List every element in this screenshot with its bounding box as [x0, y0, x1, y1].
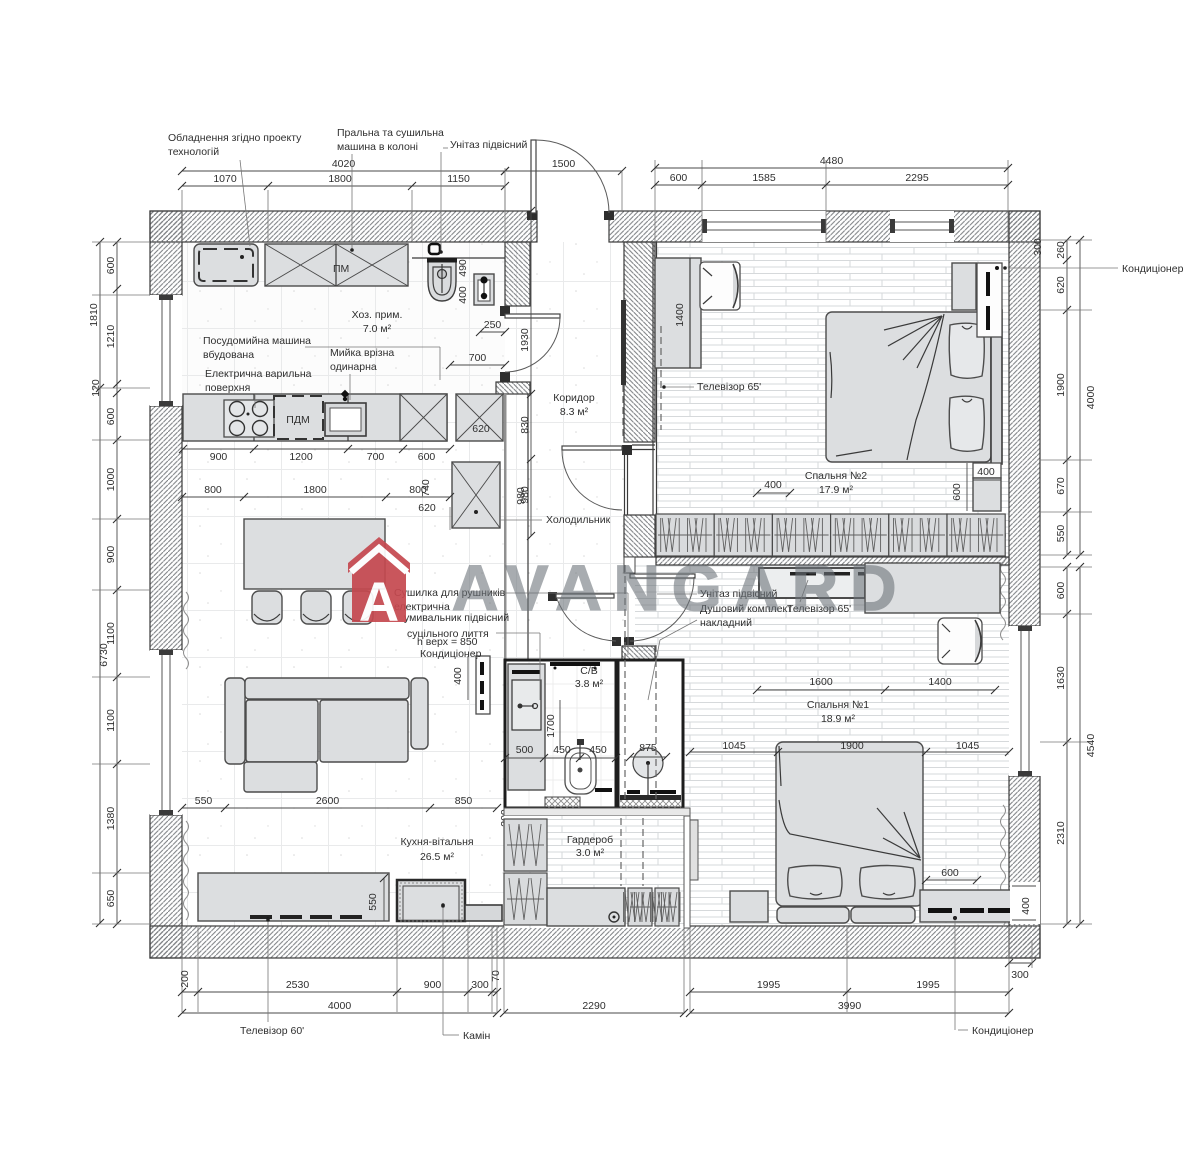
svg-text:1070: 1070 [213, 173, 237, 185]
svg-text:300: 300 [1032, 238, 1044, 256]
svg-text:550: 550 [367, 893, 379, 911]
svg-text:875: 875 [639, 742, 657, 754]
svg-text:300: 300 [1011, 969, 1029, 981]
svg-text:400: 400 [452, 667, 464, 685]
svg-text:980: 980 [515, 487, 527, 505]
svg-text:1585: 1585 [752, 172, 776, 184]
svg-text:машина в колоні: машина в колоні [337, 141, 418, 153]
svg-text:2290: 2290 [582, 1000, 606, 1012]
svg-text:1700: 1700 [545, 714, 557, 738]
svg-text:1100: 1100 [105, 622, 117, 645]
svg-text:технологій: технологій [168, 146, 219, 158]
svg-text:500: 500 [516, 744, 534, 756]
svg-text:4540: 4540 [1085, 734, 1097, 758]
svg-text:С/В: С/В [580, 665, 598, 677]
svg-text:620: 620 [1055, 276, 1067, 294]
svg-text:700: 700 [367, 451, 385, 463]
svg-text:1380: 1380 [105, 807, 117, 831]
svg-text:1100: 1100 [105, 709, 117, 732]
svg-text:400: 400 [1020, 897, 1032, 915]
svg-text:Камін: Камін [463, 1030, 491, 1042]
svg-text:600: 600 [670, 172, 688, 184]
svg-text:600: 600 [105, 257, 117, 275]
svg-text:AVANGARD: AVANGARD [452, 552, 908, 624]
svg-text:900: 900 [105, 546, 117, 564]
svg-text:одинарна: одинарна [330, 361, 377, 373]
svg-text:Кухня-вітальня: Кухня-вітальня [400, 836, 473, 848]
svg-text:вбудована: вбудована [203, 349, 254, 361]
svg-text:18.9 м²: 18.9 м² [821, 713, 856, 725]
svg-text:1800: 1800 [328, 173, 352, 185]
svg-text:4000: 4000 [1085, 386, 1097, 410]
svg-text:260: 260 [1055, 241, 1067, 259]
svg-text:600: 600 [418, 451, 436, 463]
svg-text:2530: 2530 [286, 979, 310, 991]
svg-text:Хоз. прим.: Хоз. прим. [352, 309, 403, 321]
svg-text:8.3 м²: 8.3 м² [560, 406, 589, 418]
svg-text:2295: 2295 [905, 172, 929, 184]
svg-text:200: 200 [179, 970, 191, 988]
svg-text:1150: 1150 [447, 173, 470, 185]
svg-text:Коридор: Коридор [553, 392, 595, 404]
svg-text:Холодильник: Холодильник [546, 514, 611, 526]
svg-text:1400: 1400 [674, 303, 686, 327]
svg-text:2310: 2310 [1055, 821, 1067, 845]
svg-text:450: 450 [553, 744, 571, 756]
svg-text:1400: 1400 [928, 676, 952, 688]
svg-text:400: 400 [457, 286, 469, 304]
svg-text:1800: 1800 [303, 484, 327, 496]
svg-text:1000: 1000 [105, 468, 117, 492]
svg-text:3.8 м²: 3.8 м² [575, 678, 604, 690]
svg-text:Пральна та сушильна: Пральна та сушильна [337, 127, 444, 139]
svg-text:поверхня: поверхня [205, 382, 250, 394]
svg-text:900: 900 [424, 979, 442, 991]
svg-text:900: 900 [210, 451, 228, 463]
svg-text:1995: 1995 [757, 979, 781, 991]
svg-text:740: 740 [420, 479, 432, 497]
svg-text:3990: 3990 [838, 1000, 862, 1012]
svg-text:600: 600 [951, 483, 963, 501]
svg-text:700: 700 [469, 352, 487, 364]
svg-text:h верх = 850: h верх = 850 [417, 636, 478, 648]
svg-text:1630: 1630 [1055, 666, 1067, 690]
svg-text:600: 600 [1055, 582, 1067, 600]
svg-text:1810: 1810 [88, 303, 100, 327]
svg-text:Гардероб: Гардероб [567, 834, 613, 846]
svg-text:Посудомийна машина: Посудомийна машина [203, 335, 311, 347]
svg-text:Кондиціонер: Кондиціонер [972, 1025, 1034, 1037]
svg-text:830: 830 [519, 416, 531, 434]
svg-text:300: 300 [471, 979, 489, 991]
svg-text:Кондиціонер: Кондиціонер [1122, 263, 1184, 275]
svg-text:Обладнення згідно проекту: Обладнення згідно проекту [168, 132, 302, 144]
svg-text:650: 650 [105, 890, 117, 908]
svg-text:17.9 м²: 17.9 м² [819, 484, 854, 496]
svg-text:Електрична варильна: Електрична варильна [205, 368, 312, 380]
svg-text:Кондиціонер: Кондиціонер [420, 648, 482, 660]
svg-text:Унітаз підвісний: Унітаз підвісний [450, 139, 527, 151]
svg-text:Телевізор 65': Телевізор 65' [697, 381, 761, 393]
svg-text:250: 250 [484, 319, 502, 331]
svg-text:1930: 1930 [519, 328, 531, 352]
svg-text:4480: 4480 [820, 155, 844, 167]
svg-text:1900: 1900 [840, 740, 864, 752]
svg-text:670: 670 [1055, 477, 1067, 495]
svg-text:Телевізор 60': Телевізор 60' [240, 1025, 304, 1037]
svg-text:450: 450 [589, 744, 607, 756]
svg-text:26.5 м²: 26.5 м² [420, 851, 455, 863]
svg-text:A: A [359, 570, 399, 633]
svg-text:1900: 1900 [1055, 373, 1067, 397]
svg-text:1995: 1995 [916, 979, 940, 991]
svg-text:1200: 1200 [289, 451, 313, 463]
svg-text:Спальня №2: Спальня №2 [805, 470, 867, 482]
svg-text:850: 850 [455, 795, 473, 807]
svg-text:550: 550 [195, 795, 213, 807]
svg-text:620: 620 [472, 423, 490, 435]
svg-text:1500: 1500 [552, 158, 576, 170]
svg-text:3.0 м²: 3.0 м² [576, 847, 605, 859]
svg-text:600: 600 [941, 867, 959, 879]
svg-text:550: 550 [1055, 525, 1067, 543]
svg-text:800: 800 [204, 484, 222, 496]
svg-text:1210: 1210 [105, 325, 117, 349]
svg-text:Мийка врізна: Мийка врізна [330, 347, 394, 359]
svg-text:490: 490 [457, 259, 469, 277]
svg-text:2600: 2600 [316, 795, 340, 807]
svg-text:620: 620 [418, 502, 436, 514]
svg-text:Спальня №1: Спальня №1 [807, 699, 869, 711]
svg-text:1045: 1045 [722, 740, 746, 752]
svg-text:ПДМ: ПДМ [286, 414, 309, 426]
svg-text:1600: 1600 [809, 676, 833, 688]
svg-text:ПМ: ПМ [333, 263, 349, 275]
svg-text:4000: 4000 [328, 1000, 352, 1012]
svg-text:400: 400 [764, 479, 782, 491]
svg-text:600: 600 [105, 408, 117, 426]
svg-text:7.0 м²: 7.0 м² [363, 323, 392, 335]
svg-text:1045: 1045 [956, 740, 980, 752]
svg-text:6730: 6730 [98, 643, 110, 667]
svg-text:400: 400 [977, 466, 995, 478]
svg-text:70: 70 [490, 970, 502, 982]
